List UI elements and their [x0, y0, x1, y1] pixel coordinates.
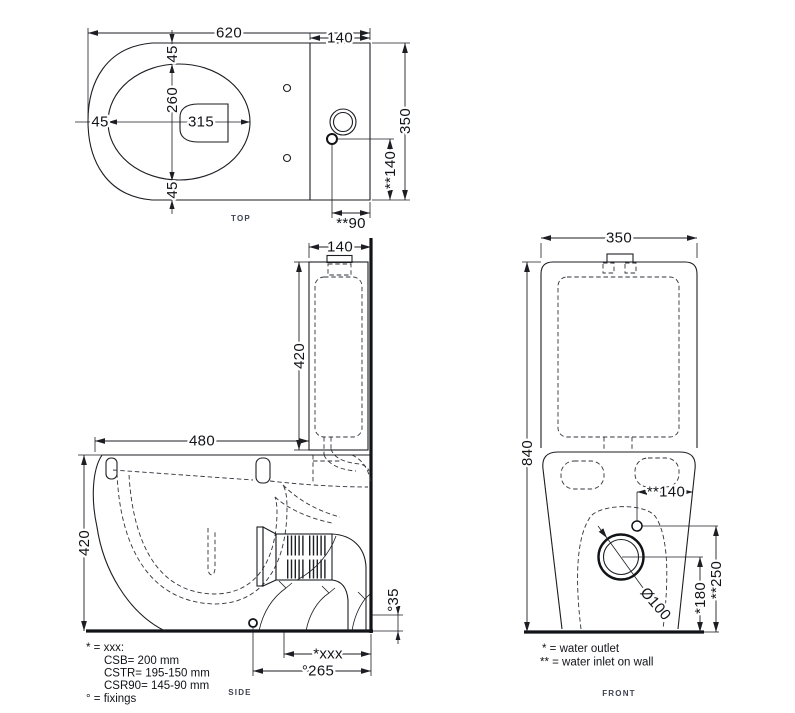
dim-front-inlet-offset: **140 [647, 484, 685, 501]
dim-side-bowl-height: 420 [76, 530, 93, 556]
front-view-label: FRONT [602, 689, 636, 698]
technical-drawing-sheet: 620 140 350 **140 **90 45 315 45 260 45 … [0, 0, 795, 713]
front-legend-line2: ** = water inlet on wall [540, 657, 653, 669]
dim-side-fixing-height: °35 [385, 588, 402, 612]
dim-top-tank-depth: 140 [327, 30, 353, 47]
side-legend-line5: ° = fixings [86, 693, 137, 705]
dim-front-overall-width: 350 [606, 230, 632, 247]
front-legend-line1: * = water outlet [542, 643, 620, 655]
dim-side-outlet-distance: *xxx [313, 646, 343, 663]
dim-front-inlet-height: **250 [708, 561, 725, 599]
top-view-label: TOP [231, 214, 251, 223]
side-legend-line3: CSTR= 195-150 mm [104, 668, 210, 680]
dim-side-tank-depth: 140 [327, 239, 353, 256]
dim-top-overall-width: 350 [397, 108, 414, 134]
dim-top-overall-length: 620 [216, 25, 242, 42]
dim-top-rim-width: 260 [164, 87, 181, 113]
side-view-label: SIDE [228, 688, 251, 697]
side-legend-line4: CSR90= 145-90 mm [104, 680, 209, 692]
dim-side-bowl-depth: 480 [189, 433, 215, 450]
dim-top-rim-offset-bottom: 45 [164, 181, 181, 198]
wc-dimension-drawing: 620 140 350 **140 **90 45 315 45 260 45 … [0, 0, 795, 713]
dim-front-outlet-height: *180 [692, 582, 709, 614]
side-legend-line2: CSB= 200 mm [104, 655, 179, 667]
side-legend-line1: * = xxx: [86, 642, 124, 654]
dim-side-fixing-distance: °265 [302, 663, 334, 680]
dim-top-inlet-offset-back: **90 [336, 215, 366, 232]
dim-top-inlet-offset-side: **140 [382, 151, 399, 189]
dim-top-rim-offset-top: 45 [164, 45, 181, 62]
dim-top-rim-offset-left: 45 [91, 114, 108, 131]
dim-side-tank-height: 420 [291, 343, 308, 369]
dim-front-overall-height: 840 [519, 440, 536, 466]
dim-top-rim-length: 315 [188, 114, 214, 131]
